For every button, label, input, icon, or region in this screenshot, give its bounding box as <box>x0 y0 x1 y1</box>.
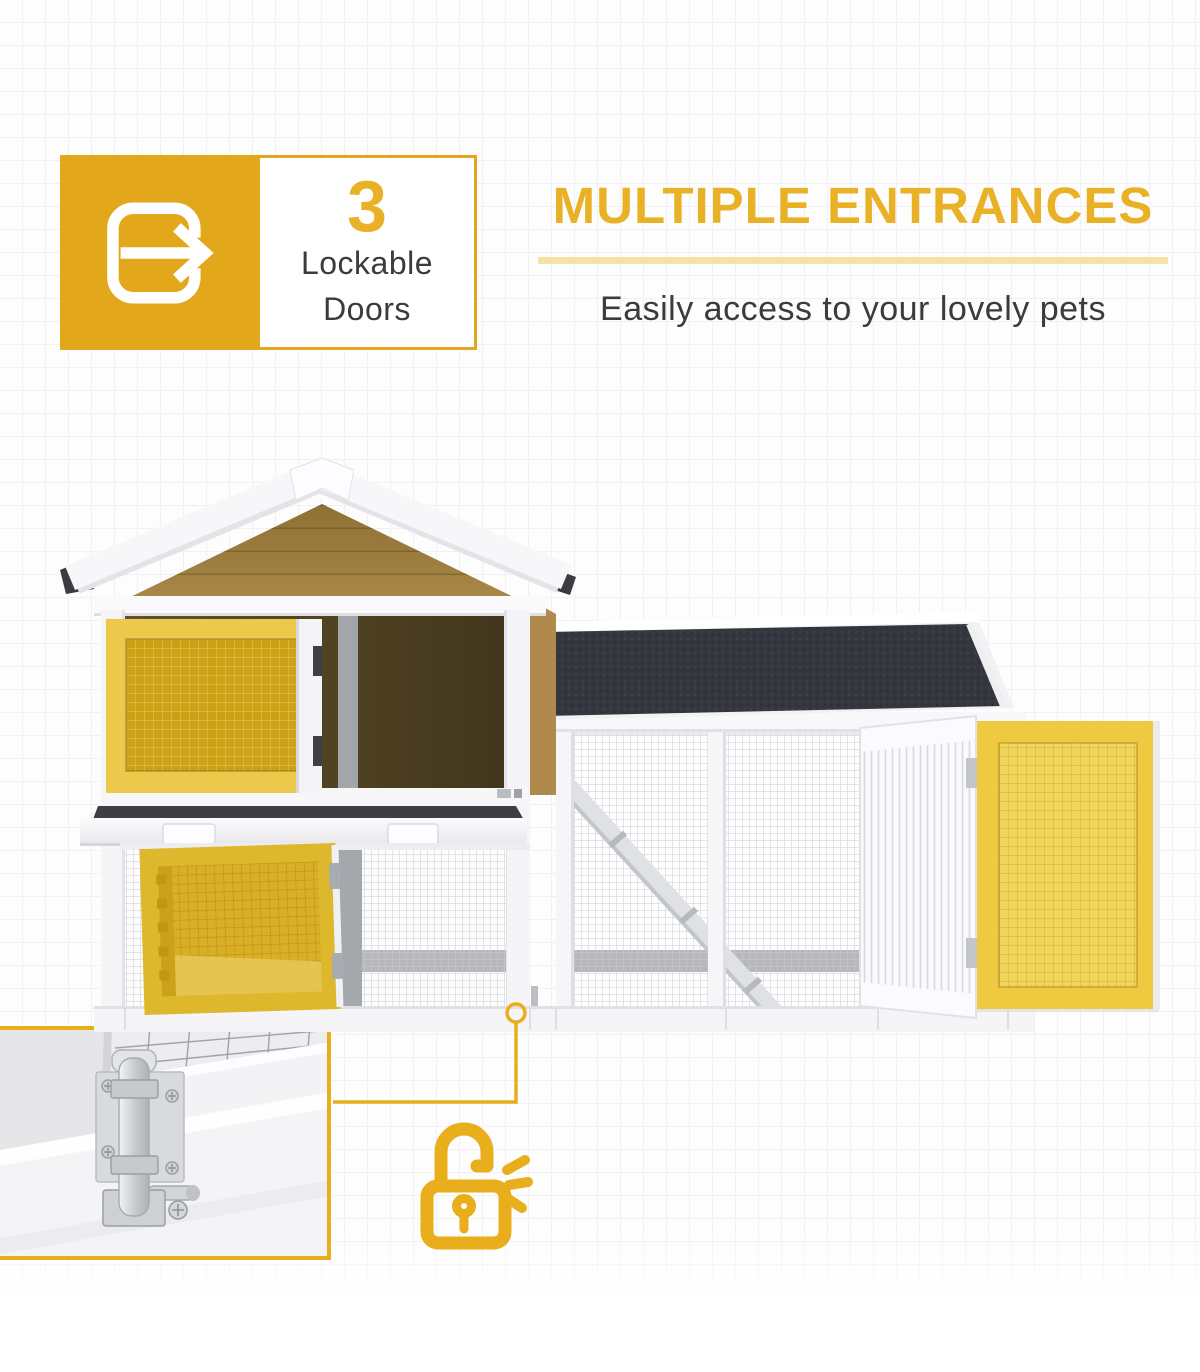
door-hinge <box>313 736 322 766</box>
door-hinge <box>966 938 978 968</box>
door-hinge <box>966 758 978 788</box>
bolt-latch-hardware <box>96 1050 200 1226</box>
run-white-door-open <box>855 710 985 1025</box>
callout-line <box>333 1023 516 1102</box>
product-illustration <box>0 0 1200 1372</box>
pull-out-tray <box>80 818 527 846</box>
unlocked-padlock-icon <box>427 1129 528 1243</box>
hutch-illustration <box>60 458 1160 1032</box>
run-yellow-door-open <box>977 721 1160 1012</box>
door-hinge <box>332 953 343 979</box>
inset-latch-photo <box>0 1026 331 1260</box>
run-roof <box>540 612 1014 720</box>
door-hinge <box>313 646 322 676</box>
upper-yellow-door <box>106 619 322 793</box>
lower-yellow-door <box>139 843 343 1015</box>
door-hinge <box>329 863 340 889</box>
